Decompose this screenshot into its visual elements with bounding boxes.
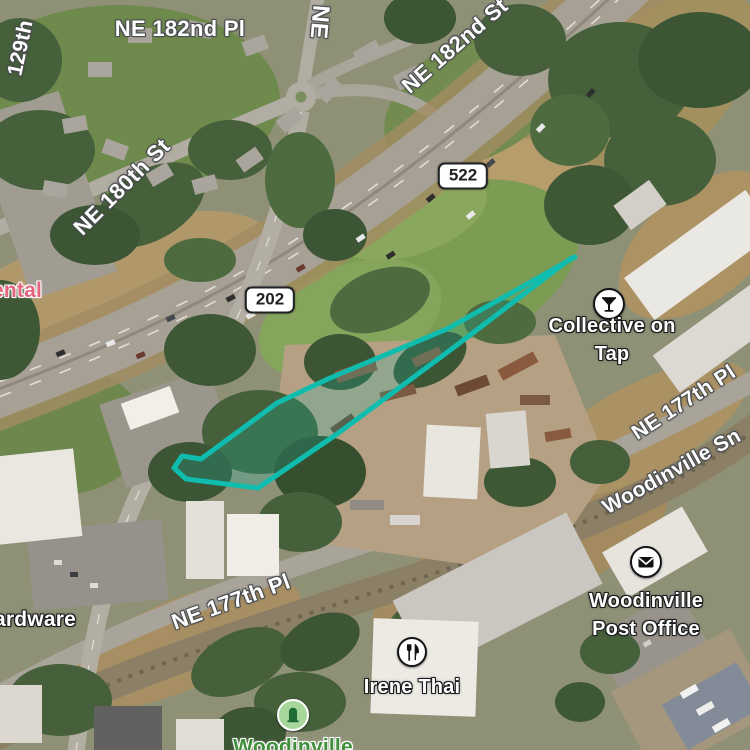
route-shield-202: 202 — [245, 287, 295, 314]
poi-label-irene-thai[interactable]: Irene Thai — [364, 673, 460, 701]
poi-label-collective-on-tap[interactable]: Collective on Tap — [543, 312, 681, 368]
route-shield-522: 522 — [438, 163, 488, 190]
street-label-ne-vertical: NE — [304, 4, 335, 40]
memorial-icon[interactable] — [277, 699, 309, 731]
street-label-ne-182nd-pl: NE 182nd Pl — [115, 16, 245, 42]
poi-label-hardware-clipped[interactable]: ardware — [0, 605, 76, 634]
mail-icon[interactable] — [630, 546, 662, 578]
restaurant-icon[interactable] — [397, 637, 427, 667]
poi-label-woodinville-post-office[interactable]: Woodinville Post Office — [589, 587, 703, 643]
poi-label-woodinville-park[interactable]: Woodinville — [233, 732, 353, 750]
satellite-map[interactable]: NE 182nd Pl 129th NE NE 182nd St NE 180t… — [0, 0, 750, 750]
poi-label-rental-clipped[interactable]: ental — [0, 276, 42, 305]
